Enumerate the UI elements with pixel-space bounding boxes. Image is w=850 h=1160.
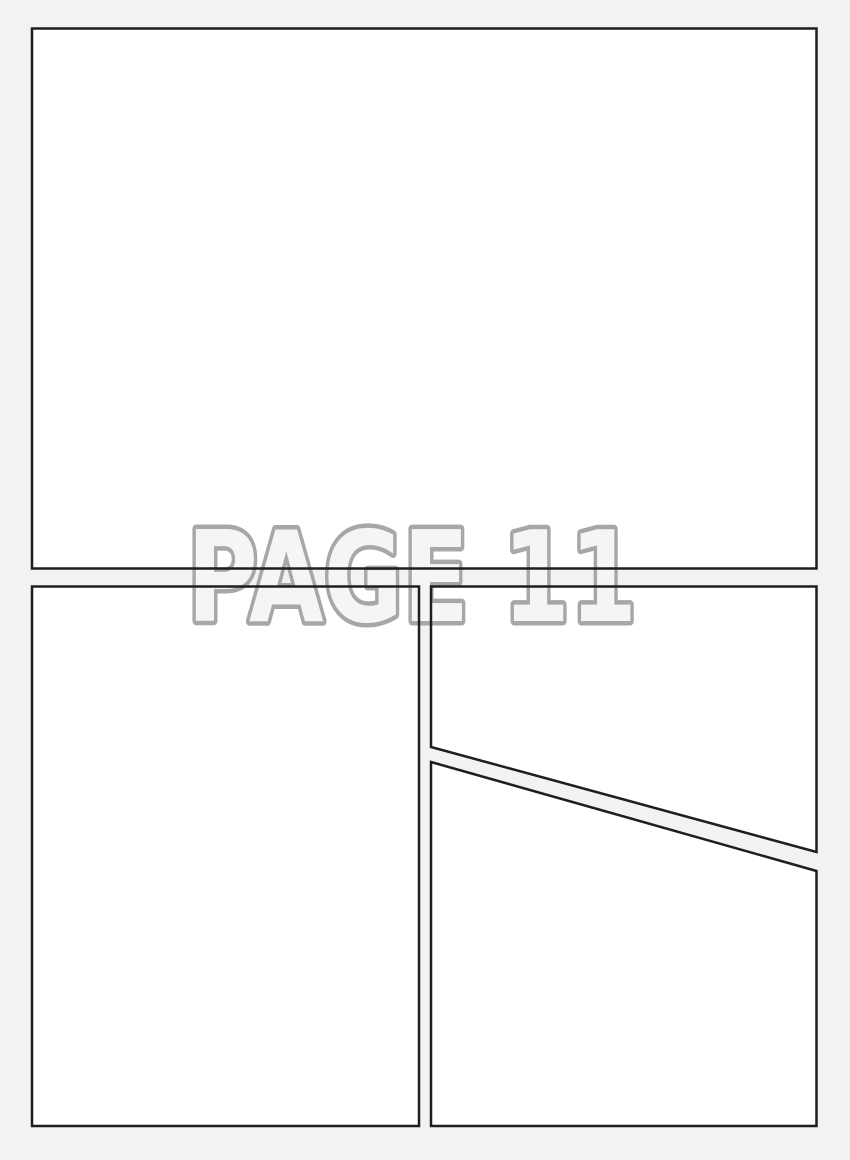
comic-page-canvas: PAGE 11 [0, 0, 850, 1160]
panel-1-fill [32, 29, 817, 569]
comic-page-template: PAGE 11 [0, 0, 850, 1160]
page-number-watermark: PAGE 11 [187, 504, 637, 651]
panel-2-fill [32, 587, 419, 1127]
